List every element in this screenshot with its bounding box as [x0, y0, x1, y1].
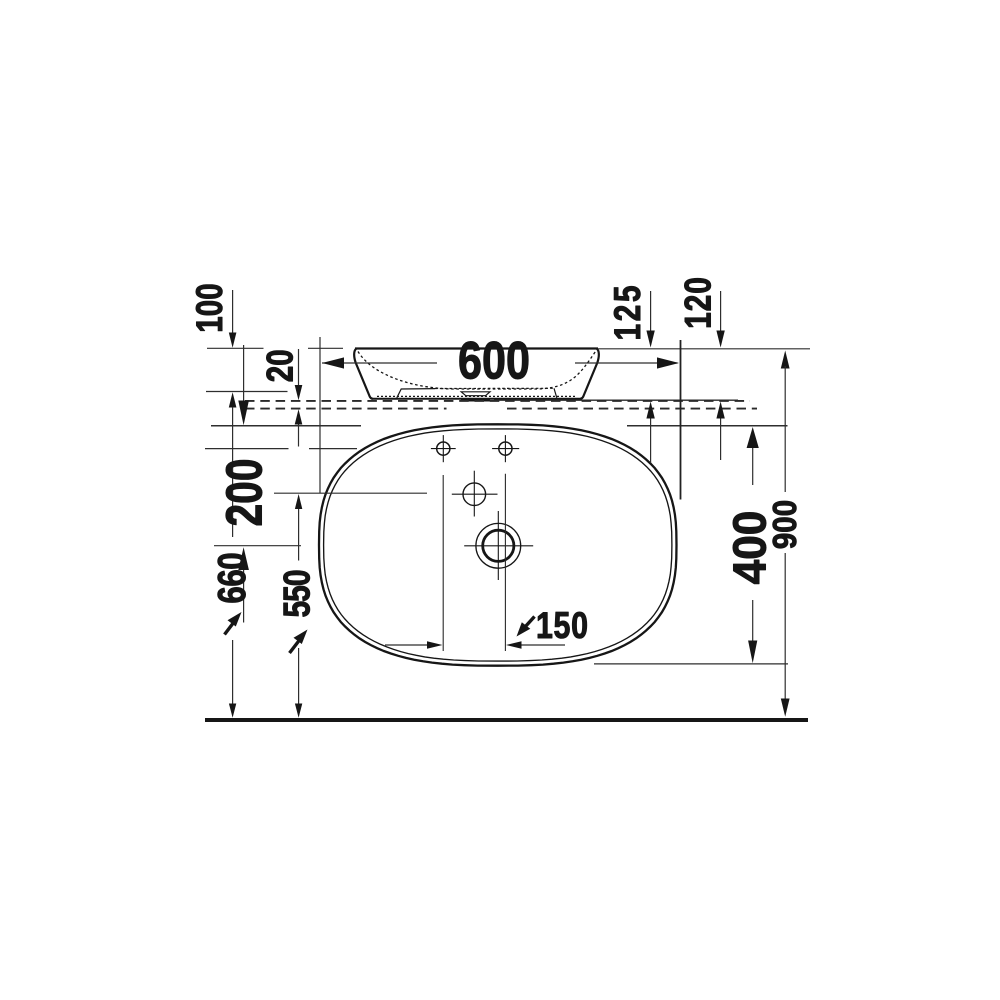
svg-text:200: 200 [215, 458, 272, 526]
svg-text:550: 550 [277, 569, 318, 617]
svg-text:125: 125 [608, 285, 649, 340]
svg-text:660: 660 [211, 552, 254, 603]
svg-text:20: 20 [260, 349, 301, 382]
svg-text:100: 100 [190, 283, 231, 332]
svg-text:600: 600 [458, 331, 530, 390]
svg-text:120: 120 [678, 277, 719, 329]
svg-text:900: 900 [765, 500, 803, 549]
svg-text:150: 150 [536, 605, 588, 647]
